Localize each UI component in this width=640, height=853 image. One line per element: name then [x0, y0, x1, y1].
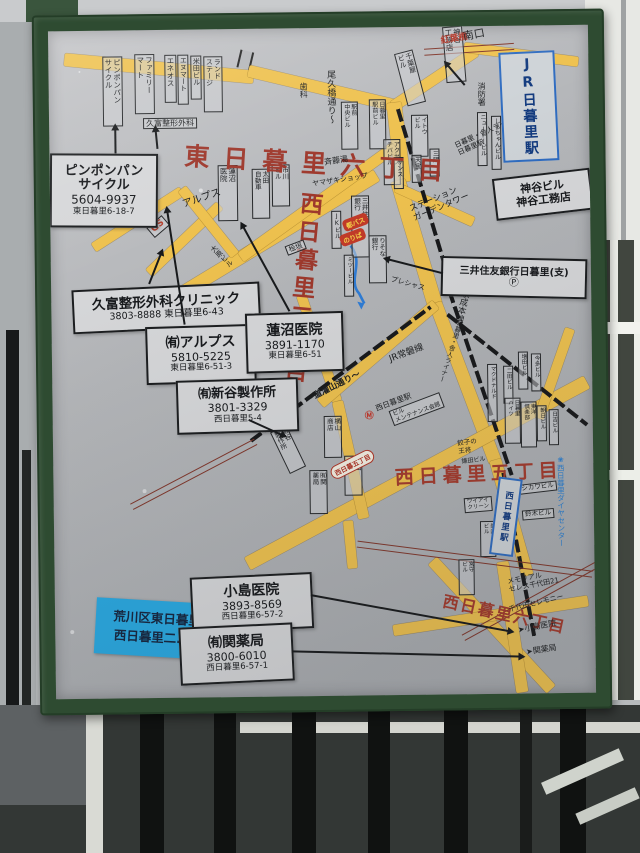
photo-of-map-signboard: 荒川区東日暮里六丁目 西日暮里二.五.六丁目 ピンポンパンサイクルファミリーマー… [0, 0, 640, 853]
building-name-column: ハイツ [506, 400, 512, 442]
building-name-column: ピンポンパン [113, 58, 121, 124]
building-name-column: ビル [460, 561, 466, 593]
map-panel: 荒川区東日暮里六丁目 西日暮里二.五.六丁目 ピンポンパンサイクルファミリーマー… [48, 25, 596, 700]
arrow-head [111, 123, 119, 130]
building-name-column: 太田 [261, 171, 268, 217]
building-name-column: 駅前 [350, 104, 357, 148]
info-box: 蓮沼医院3891-1170東日暮里6-51 [245, 311, 345, 374]
building-name-column: 日暮里 [513, 400, 519, 442]
building-name-column: 蓮沼 [228, 167, 236, 219]
map-label: 歯科 [299, 82, 309, 98]
building-name-column: ㈲関 [319, 472, 326, 512]
building-label: エネオス [164, 55, 176, 103]
arrow-head [162, 205, 171, 213]
info-box-line: 西日暮里5-4 [179, 413, 297, 426]
building-label: ランドステージ [203, 56, 223, 112]
white-fence-pipe [86, 705, 103, 853]
info-box-line: ピンポンパン [52, 164, 156, 179]
map-label: 餃子の 王将 [457, 438, 478, 455]
info-box: ㈲新谷製作所3801-3329西日暮里5-4 [176, 377, 300, 435]
building-label: 日暮里ハイツ [504, 398, 521, 444]
building-label: 増田ビル [518, 351, 528, 389]
building-name-column: 宮守 [467, 561, 473, 593]
building-name-column: 東洋 [529, 403, 535, 445]
fence-bar [140, 705, 164, 853]
building-label: 駅前中央ビル [341, 102, 359, 150]
building-label: 横山商店 [324, 416, 343, 458]
road [64, 53, 254, 83]
building-name-column: 自動車 [254, 171, 261, 217]
building-label: ファミリーマート [134, 54, 155, 114]
fence-bar [292, 705, 316, 853]
fence-bar [444, 705, 468, 853]
arrow-head [151, 125, 160, 133]
building-name-column: ランド [213, 58, 221, 110]
station-name: 西日暮里駅 [497, 490, 516, 544]
info-box-line: 5604-9937 [52, 194, 156, 208]
blue-side-label: ❀西日暮里ダイヤセンター [555, 455, 565, 547]
info-box-line: 東日暮里6-51-3 [148, 362, 254, 375]
building-label: 朝日ビル [537, 405, 547, 441]
building-name-column: JKビル [333, 213, 339, 247]
building-name-column: 増田ビル [520, 354, 526, 388]
building-name-column: 今多ビル [533, 355, 539, 389]
road [343, 520, 358, 569]
fence-bar [520, 705, 532, 853]
building-label: イトウビル [411, 115, 429, 157]
building-name-column: ミツービル [346, 257, 352, 295]
arrow-head [518, 652, 525, 660]
map-label: ワイアイ クリーン [464, 496, 493, 513]
map-label: ➤関薬局 [526, 643, 558, 657]
info-box-line: 東日暮里6-51 [248, 350, 342, 362]
building-name-column: イトウ [420, 117, 426, 155]
building-name-column: 銀行 [370, 237, 377, 281]
building-name-column: ファミリー [145, 56, 153, 112]
info-box: 三井住友銀行日暮里(支)Ⓟ [441, 256, 588, 299]
building-name-column: 二田ビル [505, 368, 511, 402]
station-name: JR日暮里駅 [517, 56, 542, 157]
map-label: 消防署 [477, 82, 487, 106]
arrow-head [382, 254, 391, 263]
pointer-arrow [154, 127, 158, 149]
green-sign-frame: 荒川区東日暮里六丁目 西日暮里二.五.六丁目 ピンポンパンサイクルファミリーマー… [32, 9, 613, 716]
building-name-column: エヌマート [179, 57, 187, 103]
wall-base [0, 705, 96, 805]
track-line [130, 439, 257, 510]
info-box: ㈲アルプス5810-5225東日暮里6-51-3 [145, 324, 257, 385]
metro-icon: Ⓜ [365, 411, 374, 422]
info-box: ㈲関薬局3800-6010西日暮里6-57-1 [178, 622, 295, 685]
building-label: ミツービル [344, 255, 354, 297]
building-label: 宮守ビル [458, 559, 474, 595]
building-label: JKビル [331, 211, 341, 249]
building-name-column: 米田ビル [192, 57, 199, 97]
building-label: ㈲関薬局 [309, 470, 328, 514]
building-name-column: 横山 [333, 418, 340, 456]
fence-bar [368, 705, 390, 853]
building-name-column: ビル [413, 117, 419, 155]
wall-seam [621, 0, 626, 250]
arrow-head [507, 627, 515, 636]
map-label: 南口 [462, 27, 486, 44]
station-box-nippori: JR日暮里駅 [498, 50, 559, 163]
building-label: 米田ビル [190, 55, 202, 99]
pointer-arrow [114, 125, 116, 153]
building-name-column: ステージ [205, 58, 213, 110]
building-label: 太田自動車 [252, 169, 271, 219]
info-box: ピンポンパンサイクル5604-9937東日暮里6-18-7 [50, 153, 158, 228]
building-name-column: 日吉ビル [551, 411, 557, 443]
map-label: 鈴木ビル [522, 508, 555, 520]
info-box: 神谷ビル神谷工務店 [492, 168, 594, 221]
building-name-column: 中央ビル [343, 104, 350, 148]
building-name-column: エネオス [166, 57, 174, 101]
info-box-line: Ⓟ [443, 276, 585, 291]
map-label: 尾久橋通り〜 [324, 70, 335, 124]
fence-bar [214, 705, 236, 853]
building-label: エヌマート [177, 55, 189, 105]
building-name-column: 薬局 [311, 472, 318, 512]
building-label: 今多ビル [531, 353, 541, 391]
info-box-line: サイクル [52, 179, 156, 194]
building-name-column: マクドナルド [489, 366, 495, 420]
building-name-column: ビル [482, 523, 488, 555]
info-box-line: 東日暮里6-18-7 [52, 207, 156, 217]
arrow-head [237, 220, 247, 230]
building-label: 東洋倶楽部 [520, 401, 537, 447]
building-label: マクドナルド [487, 364, 497, 422]
building-name-column: サイクル [104, 59, 112, 125]
building-name-column: 倶楽部 [523, 403, 529, 445]
building-name-column: 朝日ビル [539, 407, 545, 439]
panel-specks [78, 71, 80, 73]
building-name-column: マート [136, 56, 144, 112]
pointer-arrow [292, 650, 524, 657]
building-name-column: 商店 [326, 418, 333, 456]
building-name-column: 駅前ビル [371, 101, 378, 147]
building-label: ピンポンパンサイクル [102, 56, 123, 126]
building-label: 日吉ビル [549, 409, 559, 445]
building-name-column: 三井住友 [360, 197, 367, 255]
